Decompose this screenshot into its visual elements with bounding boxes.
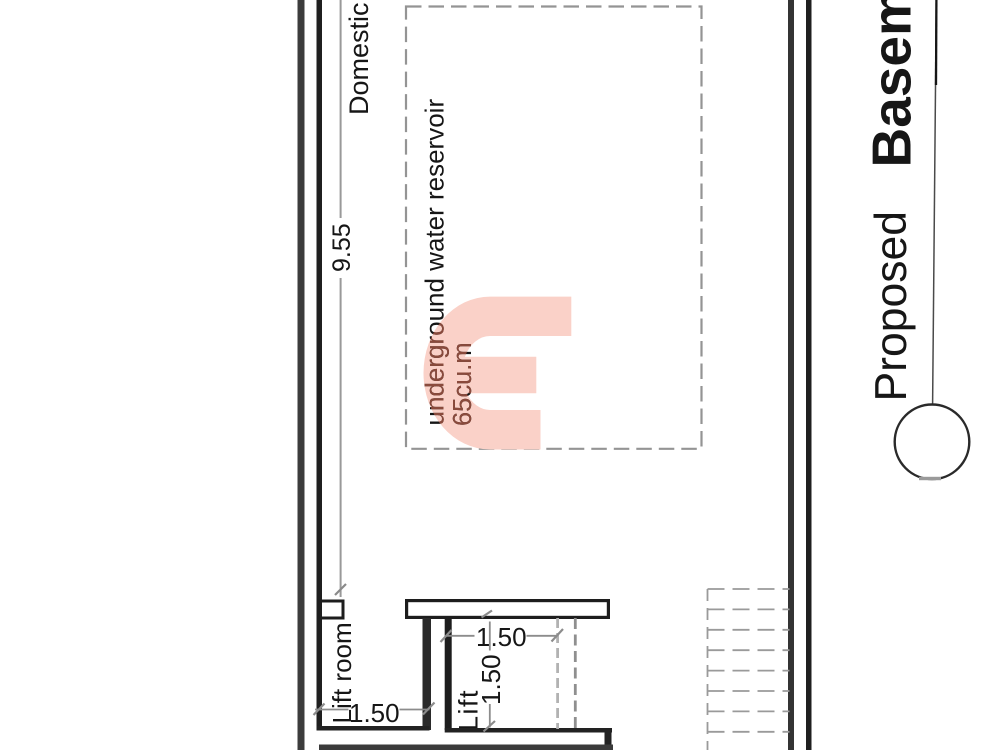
svg-text:Basement Plan: Basement Plan bbox=[861, 0, 923, 168]
svg-text:1.50: 1.50 bbox=[476, 654, 506, 705]
svg-text:Proposed: Proposed bbox=[867, 211, 916, 402]
svg-text:9.55: 9.55 bbox=[328, 223, 356, 272]
svg-text:1.50: 1.50 bbox=[476, 622, 527, 652]
svg-text:1.50: 1.50 bbox=[349, 698, 400, 728]
svg-text:Domestic: Domestic bbox=[344, 2, 374, 115]
